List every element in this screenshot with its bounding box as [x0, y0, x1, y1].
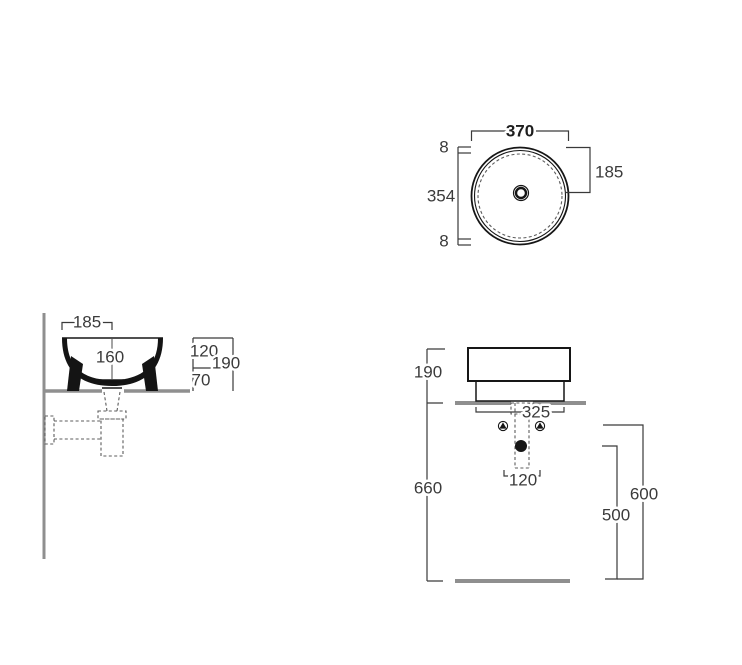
- basin-front-upper: [468, 348, 570, 381]
- waste-pipe-dashed: [54, 421, 101, 439]
- dimension-label-600: 600: [630, 485, 658, 504]
- dimension-label-190-front: 190: [414, 363, 442, 382]
- dimension-label-8-top: 8: [439, 138, 448, 157]
- dimension-label-160: 160: [96, 348, 124, 367]
- trap-coupling-dashed: [98, 411, 126, 419]
- fixing-symbol-right: [535, 421, 544, 430]
- basin-front-base: [476, 381, 564, 401]
- drawing-sheet: 370 8 354 8 185: [0, 0, 742, 665]
- dimension-lines-190-660: [427, 349, 445, 581]
- side-view: 160 185 120 190 70: [44, 313, 240, 560]
- dimension-label-185-top-view: 185: [595, 163, 623, 182]
- dimension-line-325: [476, 407, 564, 412]
- fixing-triangle-right: [536, 422, 543, 428]
- basin-hidden-edge-circle: [478, 154, 562, 238]
- dimension-label-185-side: 185: [73, 313, 101, 332]
- dimension-label-120-front: 120: [509, 471, 537, 490]
- dimension-label-354: 354: [427, 187, 455, 206]
- drain-tailpiece-dashed: [104, 392, 120, 411]
- waste-outlet-point: [515, 440, 527, 452]
- wall-flange-dashed: [45, 416, 54, 444]
- dimension-label-325: 325: [522, 403, 550, 422]
- basin-outer-rim-circle: [472, 148, 569, 245]
- top-view: 370 8 354 8 185: [427, 122, 624, 251]
- basin-technical-drawing: 370 8 354 8 185: [0, 0, 742, 665]
- front-view: 325 120 190 660 600 500: [414, 348, 658, 581]
- dimension-label-370: 370: [506, 122, 534, 141]
- dimension-label-8-bottom: 8: [439, 232, 448, 251]
- dimension-label-500: 500: [602, 506, 630, 525]
- basin-inner-rim-circle: [475, 151, 566, 242]
- fixing-triangle-left: [499, 422, 506, 428]
- drain-ring-circle: [516, 188, 526, 198]
- trap-body-dashed: [101, 419, 123, 456]
- dimension-label-660: 660: [414, 479, 442, 498]
- siphon-hidden-lines: [45, 392, 126, 456]
- dimension-label-190-side: 190: [212, 354, 240, 373]
- dimension-line-185-top-view: [566, 148, 590, 193]
- fixing-symbol-left: [498, 421, 507, 430]
- dimension-label-70: 70: [192, 371, 211, 390]
